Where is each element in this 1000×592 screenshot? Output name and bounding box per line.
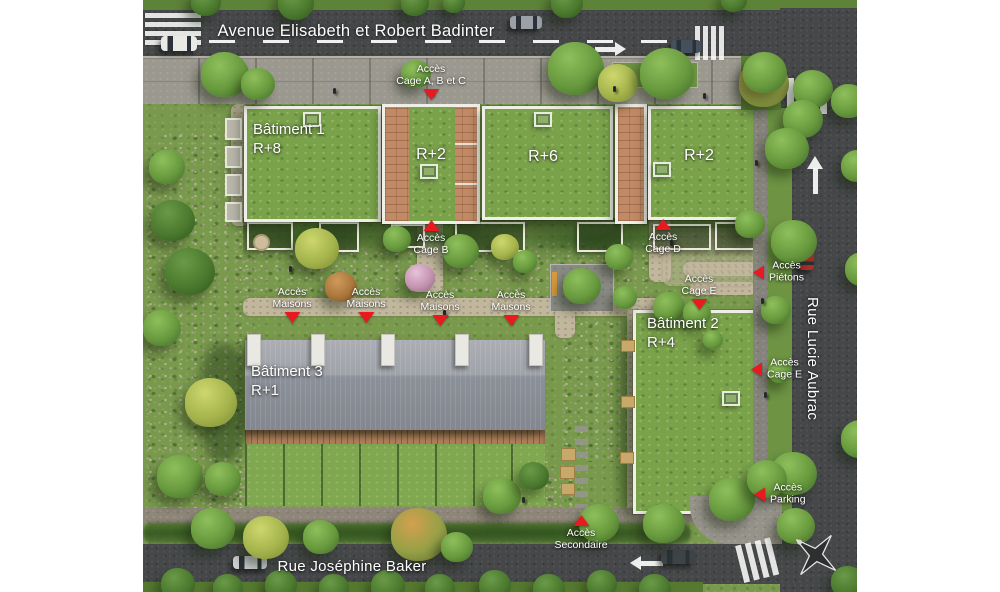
access-marker: AccèsCage E bbox=[751, 358, 802, 381]
access-marker: AccèsCage A, B et C bbox=[396, 64, 465, 100]
person bbox=[333, 88, 336, 94]
balcony bbox=[225, 118, 242, 140]
car bbox=[661, 550, 695, 564]
block-r6-label: R+6 bbox=[528, 148, 558, 166]
marker-triangle-icon bbox=[284, 312, 300, 323]
marker-label: AccèsCage A, B et C bbox=[396, 64, 465, 87]
site-plan-map: Avenue Elisabeth et Robert Badinter Rue … bbox=[143, 0, 857, 592]
tree bbox=[383, 226, 411, 252]
tree bbox=[519, 462, 549, 490]
tree bbox=[157, 455, 203, 498]
roof-vent bbox=[420, 164, 438, 179]
crosswalk-bar bbox=[703, 26, 708, 60]
person bbox=[761, 298, 764, 304]
building3-floors: R+1 bbox=[251, 381, 323, 400]
access-marker: AccèsCage D bbox=[645, 219, 681, 255]
tree bbox=[643, 504, 685, 543]
marker-triangle-icon bbox=[423, 89, 439, 100]
marker-label: AccèsSecondaire bbox=[554, 528, 607, 551]
terrace-divider bbox=[455, 183, 477, 185]
marker-label: AccèsMaisons bbox=[272, 287, 311, 310]
garden-path bbox=[555, 308, 575, 338]
building1-floors: R+8 bbox=[253, 139, 325, 158]
building3-terrace-strip bbox=[245, 430, 545, 444]
tree bbox=[241, 68, 275, 100]
tree bbox=[735, 210, 765, 238]
balcony bbox=[225, 202, 242, 222]
roof-vent bbox=[722, 391, 740, 406]
tree bbox=[391, 508, 447, 561]
stepping-stones bbox=[575, 426, 588, 510]
access-marker: AccèsMaisons bbox=[420, 290, 459, 326]
person bbox=[703, 93, 706, 99]
marker-triangle-icon bbox=[503, 315, 519, 326]
marker-triangle-icon bbox=[655, 219, 671, 230]
tree bbox=[191, 508, 235, 549]
tree bbox=[640, 48, 694, 99]
planter bbox=[620, 452, 634, 464]
tree bbox=[831, 84, 857, 118]
tree bbox=[185, 378, 237, 427]
person bbox=[613, 86, 616, 92]
roof-vent bbox=[653, 162, 671, 177]
access-marker: AccèsMaisons bbox=[346, 287, 385, 323]
tree bbox=[761, 296, 791, 324]
marker-triangle-icon bbox=[423, 220, 439, 231]
crosswalk-bar bbox=[145, 13, 201, 18]
person bbox=[522, 497, 525, 503]
tree bbox=[563, 268, 601, 304]
building2-label: Bâtiment 2 R+4 bbox=[647, 314, 719, 352]
terrace-strip bbox=[615, 104, 647, 224]
car bbox=[161, 36, 197, 51]
access-marker: AccèsMaisons bbox=[272, 287, 311, 323]
tree bbox=[587, 570, 617, 592]
tree bbox=[295, 228, 339, 269]
street-label-rue-lucie-aubrac: Rue Lucie Aubrac bbox=[804, 297, 821, 420]
person bbox=[764, 392, 767, 398]
tree bbox=[765, 128, 809, 169]
marker-label: AccèsPiétons bbox=[769, 261, 804, 284]
access-marker: AccèsParking bbox=[754, 483, 806, 506]
roof-vent bbox=[534, 112, 552, 127]
marker-triangle-icon bbox=[753, 265, 764, 279]
building3-name: Bâtiment 3 bbox=[251, 362, 323, 381]
marker-label: AccèsMaisons bbox=[491, 290, 530, 313]
terrace-divider bbox=[455, 143, 477, 145]
tree bbox=[771, 220, 817, 263]
planter bbox=[560, 466, 575, 479]
crosswalk-bar bbox=[145, 22, 201, 27]
marker-label: AccèsParking bbox=[770, 483, 806, 506]
planter bbox=[621, 340, 635, 352]
tree bbox=[303, 520, 339, 554]
marker-label: AccèsCage E bbox=[767, 358, 802, 381]
person bbox=[755, 160, 758, 166]
tree bbox=[605, 244, 633, 270]
car bbox=[510, 16, 542, 29]
tree bbox=[613, 286, 637, 309]
tree bbox=[151, 200, 195, 241]
marker-triangle-icon bbox=[754, 487, 765, 501]
tree bbox=[743, 52, 787, 93]
marker-triangle-icon bbox=[432, 315, 448, 326]
access-marker: AccèsCage E bbox=[681, 274, 716, 310]
planter bbox=[621, 396, 635, 408]
access-marker: AccèsMaisons bbox=[491, 290, 530, 326]
crosswalk-bar bbox=[711, 26, 716, 60]
tree bbox=[405, 264, 435, 292]
tree bbox=[483, 478, 521, 514]
tree bbox=[441, 532, 473, 562]
block-r2-right-label: R+2 bbox=[684, 147, 714, 165]
plaza-bench bbox=[552, 272, 557, 296]
tree bbox=[205, 462, 241, 496]
person bbox=[289, 266, 292, 272]
tree bbox=[548, 42, 604, 95]
marker-label: AccèsMaisons bbox=[420, 290, 459, 313]
marker-label: AccèsCage E bbox=[681, 274, 716, 297]
building2-floors: R+4 bbox=[647, 333, 719, 352]
building1-name: Bâtiment 1 bbox=[253, 120, 325, 139]
marker-triangle-icon bbox=[751, 362, 762, 376]
building3-label: Bâtiment 3 R+1 bbox=[251, 362, 323, 400]
marker-triangle-icon bbox=[691, 299, 707, 310]
building3-dormer bbox=[529, 334, 543, 366]
access-marker: AccèsCage B bbox=[413, 220, 448, 256]
tree bbox=[513, 250, 537, 273]
marker-label: AccèsCage D bbox=[645, 232, 681, 255]
block-r2-mid-label: R+2 bbox=[416, 146, 446, 164]
planter bbox=[561, 483, 575, 495]
building2-name: Bâtiment 2 bbox=[647, 314, 719, 333]
building3-dormer bbox=[381, 334, 395, 366]
tree bbox=[243, 516, 289, 559]
building3-dormer bbox=[455, 334, 469, 366]
marker-label: AccèsMaisons bbox=[346, 287, 385, 310]
balcony bbox=[225, 146, 242, 168]
tree bbox=[143, 310, 181, 346]
building1-label: Bâtiment 1 R+8 bbox=[253, 120, 325, 158]
balcony bbox=[225, 174, 242, 196]
planter bbox=[561, 448, 576, 461]
marker-triangle-icon bbox=[358, 312, 374, 323]
marker-triangle-icon bbox=[573, 515, 589, 526]
access-marker: AccèsSecondaire bbox=[554, 515, 607, 551]
site-plan-page: Avenue Elisabeth et Robert Badinter Rue … bbox=[0, 0, 1000, 592]
round-patio-table bbox=[253, 234, 270, 251]
tree bbox=[165, 248, 215, 295]
marker-label: AccèsCage B bbox=[413, 233, 448, 256]
crosswalk-bar bbox=[719, 26, 724, 60]
tree bbox=[598, 64, 638, 102]
street-label-rue-josephine-baker: Rue Joséphine Baker bbox=[277, 558, 426, 575]
tree bbox=[149, 150, 185, 184]
street-label-avenue: Avenue Elisabeth et Robert Badinter bbox=[217, 22, 494, 41]
access-marker: AccèsPiétons bbox=[753, 261, 804, 284]
